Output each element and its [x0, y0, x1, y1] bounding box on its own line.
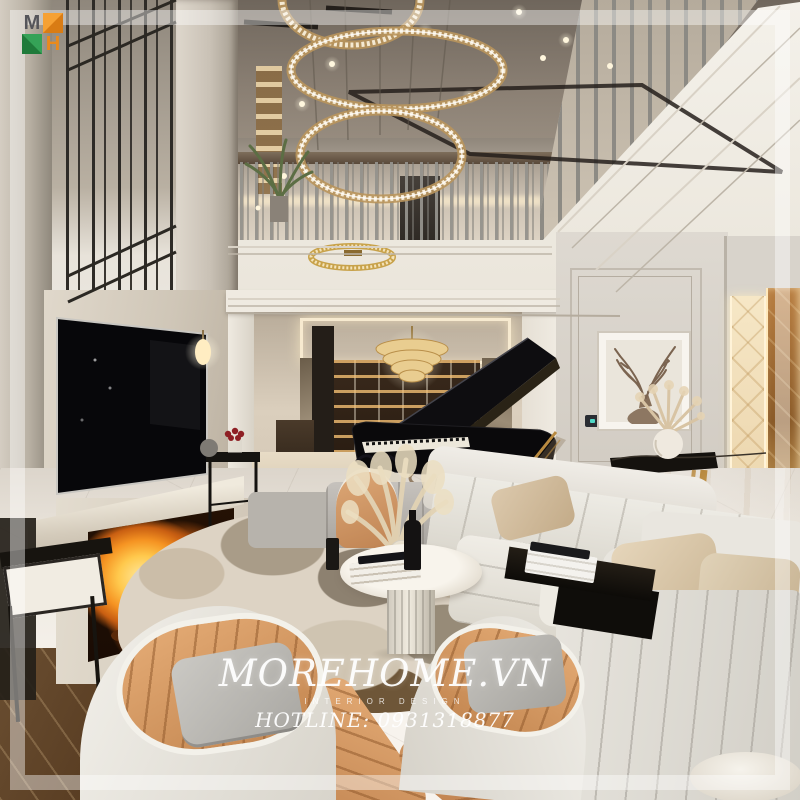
gray-bench-small — [248, 492, 336, 548]
dark-tall-cabinet — [312, 326, 334, 458]
logo-orange-square-icon — [43, 13, 63, 33]
decor-bottle — [404, 520, 421, 570]
black-candlestick — [326, 538, 339, 570]
interior-photo: MOREHOME.VN INTERIOR DESIGN HOTLINE: 093… — [0, 0, 800, 800]
white-side-table — [690, 752, 800, 800]
logo-green-square-icon — [22, 34, 42, 54]
logo-letter-m: M — [22, 13, 42, 33]
wall-panel-molding-inner — [578, 276, 692, 462]
morehome-logo: M H — [22, 13, 64, 55]
balustrade-balusters — [225, 162, 563, 242]
opening-header — [226, 290, 560, 312]
wine-display-cabinet — [330, 360, 480, 456]
metal-screen-partition — [66, 0, 178, 312]
decor-bottle-neck — [409, 510, 416, 524]
wall-switch-display — [590, 419, 595, 423]
gray-pillow-right — [463, 633, 568, 715]
coffee-table-pedestal — [387, 590, 435, 654]
logo-letter-h: H — [43, 34, 63, 54]
